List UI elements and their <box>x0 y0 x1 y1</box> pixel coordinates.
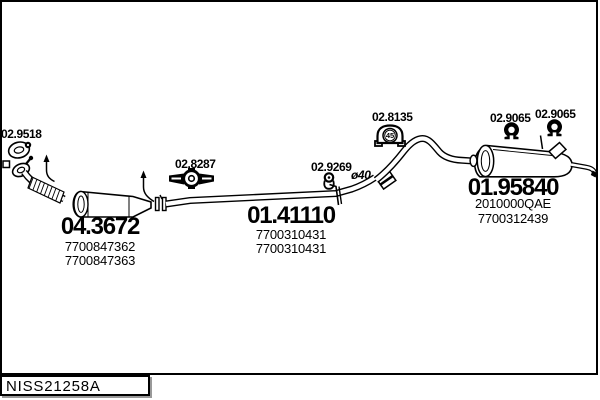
part-code-catalyst: 04.3672 <box>40 213 160 241</box>
rubber-mount-front-icon <box>169 168 214 189</box>
exhaust-diagram-page: 45 02.9518 02.8287 02.9269 ø40 02.8135 0… <box>0 0 600 400</box>
diameter-note: ø40 <box>351 168 370 182</box>
clamp-icon <box>324 173 334 189</box>
oem-number: 2010000QAE <box>453 196 573 211</box>
part-label-gasket: 02.9518 <box>1 127 42 141</box>
tail-pipe <box>571 165 598 178</box>
flex-braid-section <box>28 177 64 203</box>
hanger-rod-arrow-2 <box>141 171 155 202</box>
hanger-rod-arrow-1 <box>44 155 55 182</box>
part-label-rear-mount-1: 02.9065 <box>490 111 531 125</box>
part-label-mid-mount: 02.8135 <box>372 110 413 124</box>
oem-number: 7700310431 <box>231 241 351 256</box>
hanger-icon-2 <box>547 119 562 136</box>
part-code-centre-pipe: 01.41110 <box>231 202 351 230</box>
oem-number: 7700847363 <box>40 253 160 268</box>
oem-number: 7700312439 <box>453 211 573 226</box>
catalog-code: NISS21258A <box>2 377 148 395</box>
rear-silencer <box>470 136 572 177</box>
rubber-mount-mid-icon: 45 <box>375 126 405 147</box>
oem-number: 7700310431 <box>231 227 351 242</box>
part-label-front-mount: 02.8287 <box>175 157 216 171</box>
mount-icon-number: 45 <box>386 131 394 140</box>
catalog-code-box: NISS21258A <box>0 375 150 396</box>
pipe-flange-joint <box>156 195 167 211</box>
part-label-clamp: 02.9269 <box>311 160 352 174</box>
oem-number: 7700847362 <box>40 239 160 254</box>
part-label-rear-mount-2: 02.9065 <box>535 107 576 121</box>
